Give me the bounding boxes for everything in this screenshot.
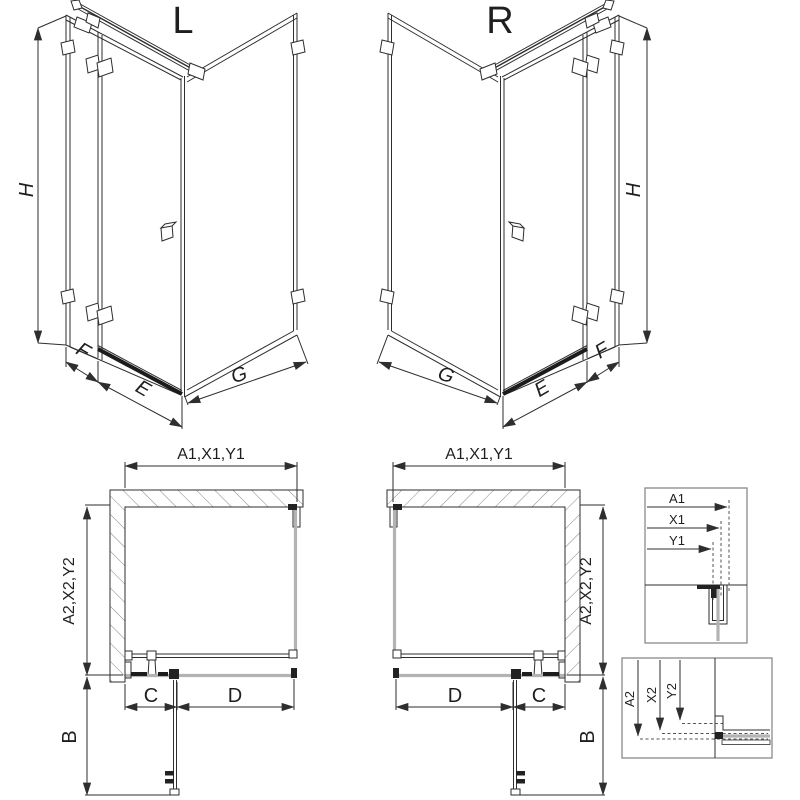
iso-right-dim-side: G — [435, 362, 457, 388]
plan-view-left — [85, 462, 303, 795]
iso-right-dim-fixed: F — [591, 337, 614, 363]
plan-right-dim-door: D — [448, 685, 462, 707]
plan-left-dim-swing: B — [59, 730, 81, 743]
iso-left-label: L — [172, 0, 193, 42]
iso-left-dim-fixed: F — [72, 338, 95, 364]
iso-right-dim-height: H — [623, 182, 645, 197]
iso-view-right — [377, 0, 647, 429]
plan-left-dim-fixed: C — [144, 685, 158, 707]
detail-width-dim-x1: X1 — [669, 512, 685, 527]
plan-right-dim-fixed: C — [532, 685, 546, 707]
plan-right-dim-depth: A2,X2,Y2 — [578, 557, 595, 625]
plan-left-dim-door: D — [228, 685, 242, 707]
plan-right-dim-swing: B — [577, 730, 599, 743]
detail-depth-dim-a2: A2 — [622, 691, 637, 707]
plan-left-dim-depth: A2,X2,Y2 — [61, 557, 78, 625]
iso-right-label: R — [486, 0, 513, 42]
plan-right-dim-width: A1,X1,Y1 — [445, 446, 513, 463]
technical-drawing-page: L H F E G R H F E G A1,X1,Y1 A2,X2,Y2 C … — [0, 0, 800, 800]
detail-width-dim-y1: Y1 — [669, 533, 685, 548]
plan-left-dim-width: A1,X1,Y1 — [177, 446, 245, 463]
detail-box-width — [645, 488, 747, 643]
detail-depth-dim-x2: X2 — [644, 687, 659, 703]
detail-depth-dim-y2: Y2 — [664, 683, 679, 699]
iso-left-dim-side: G — [228, 362, 250, 388]
plan-view-right — [387, 462, 605, 795]
detail-width-dim-a1: A1 — [669, 491, 685, 506]
technical-drawing-canvas: L H F E G R H F E G A1,X1,Y1 A2,X2,Y2 C … — [0, 0, 800, 800]
bottom-profile-section — [715, 716, 770, 730]
iso-view-left — [38, 0, 308, 429]
iso-left-dim-height: H — [16, 182, 38, 197]
detail-box-depth — [622, 658, 772, 758]
